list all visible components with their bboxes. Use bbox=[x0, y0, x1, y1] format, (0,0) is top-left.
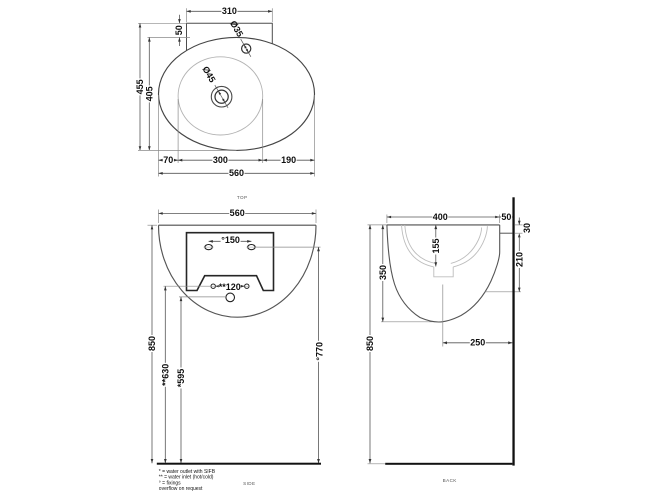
svg-text:°150: °150 bbox=[221, 235, 240, 245]
svg-text:190: 190 bbox=[281, 155, 296, 165]
svg-text:405: 405 bbox=[144, 86, 154, 101]
svg-text:50: 50 bbox=[174, 25, 184, 35]
svg-text:SIDE: SIDE bbox=[243, 481, 255, 486]
svg-text:350: 350 bbox=[378, 265, 388, 280]
svg-text:400: 400 bbox=[433, 212, 448, 222]
svg-text:50: 50 bbox=[501, 212, 511, 222]
svg-text:850: 850 bbox=[365, 336, 375, 351]
svg-text:°770: °770 bbox=[315, 342, 325, 361]
svg-text:overflow on request: overflow on request bbox=[159, 486, 203, 492]
svg-text:**630: **630 bbox=[160, 364, 170, 386]
svg-text:30: 30 bbox=[522, 223, 532, 233]
svg-text:310: 310 bbox=[222, 6, 237, 16]
svg-text:850: 850 bbox=[147, 336, 157, 351]
svg-text:70: 70 bbox=[163, 155, 173, 165]
svg-text:560: 560 bbox=[229, 168, 244, 178]
svg-text:**120: **120 bbox=[219, 282, 241, 292]
svg-text:BACK: BACK bbox=[443, 478, 458, 483]
svg-text:300: 300 bbox=[213, 155, 228, 165]
svg-text:TOP: TOP bbox=[237, 195, 248, 200]
svg-text:155: 155 bbox=[431, 238, 441, 253]
svg-text:*595: *595 bbox=[176, 369, 186, 388]
svg-text:210: 210 bbox=[514, 252, 524, 267]
svg-text:560: 560 bbox=[230, 208, 245, 218]
svg-text:250: 250 bbox=[470, 338, 485, 348]
